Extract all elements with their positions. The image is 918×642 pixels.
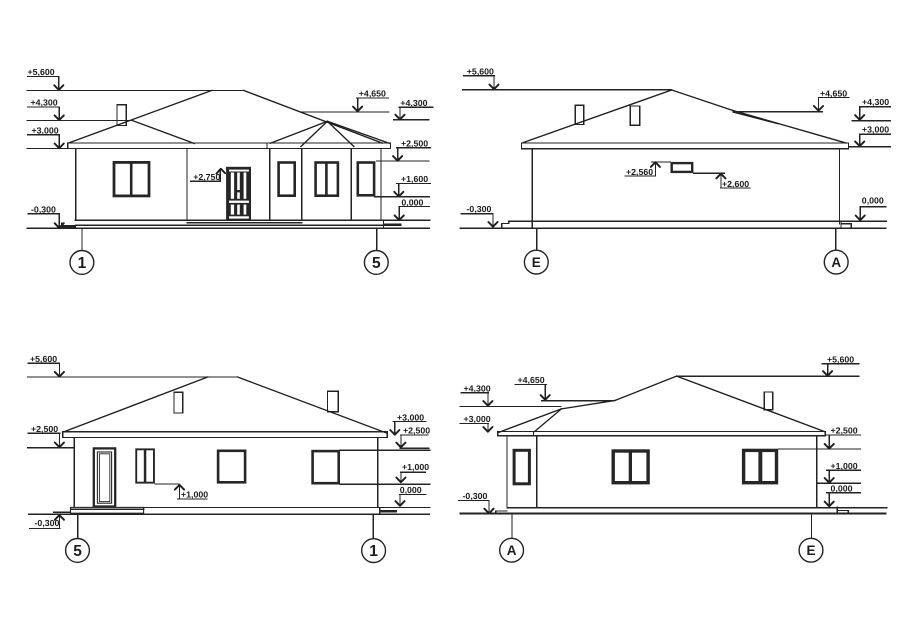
svg-text:+4,650: +4,650 [359,89,386,99]
svg-text:+4,300: +4,300 [862,97,889,107]
svg-text:А: А [507,543,517,558]
svg-text:+4,300: +4,300 [31,98,58,108]
svg-text:+1,000: +1,000 [181,489,208,499]
svg-text:+2,560: +2,560 [626,167,653,177]
svg-text:0,000: 0,000 [400,485,422,495]
svg-text:+3,000: +3,000 [397,412,424,422]
svg-text:+4,300: +4,300 [400,98,427,108]
svg-text:+5,600: +5,600 [467,67,494,77]
svg-text:-0,300: -0,300 [463,491,488,501]
svg-text:+5,600: +5,600 [28,67,55,77]
svg-text:-0,300: -0,300 [31,204,56,214]
svg-text:+1,000: +1,000 [402,462,429,472]
svg-text:+3,000: +3,000 [464,414,491,424]
svg-text:+4,650: +4,650 [518,375,545,385]
svg-text:+4,300: +4,300 [464,383,491,393]
svg-text:5: 5 [372,255,381,272]
svg-text:5: 5 [73,543,82,560]
svg-text:+1,600: +1,600 [401,174,428,184]
svg-text:1: 1 [369,543,378,560]
svg-text:+2,500: +2,500 [401,139,428,149]
svg-text:Е: Е [532,255,541,270]
svg-text:1: 1 [78,255,87,272]
svg-text:Е: Е [806,543,815,558]
svg-text:+5,600: +5,600 [30,354,57,364]
svg-text:+3,000: +3,000 [32,125,59,135]
svg-text:+5,600: +5,600 [827,354,854,364]
svg-text:+2,600: +2,600 [722,179,749,189]
svg-text:А: А [831,255,841,270]
svg-text:+2,500: +2,500 [403,426,430,436]
svg-text:0,000: 0,000 [862,195,884,205]
svg-text:-0,300: -0,300 [467,204,492,214]
svg-text:+2,500: +2,500 [31,424,58,434]
svg-text:+2,500: +2,500 [831,426,858,436]
svg-text:+3,000: +3,000 [862,125,889,135]
